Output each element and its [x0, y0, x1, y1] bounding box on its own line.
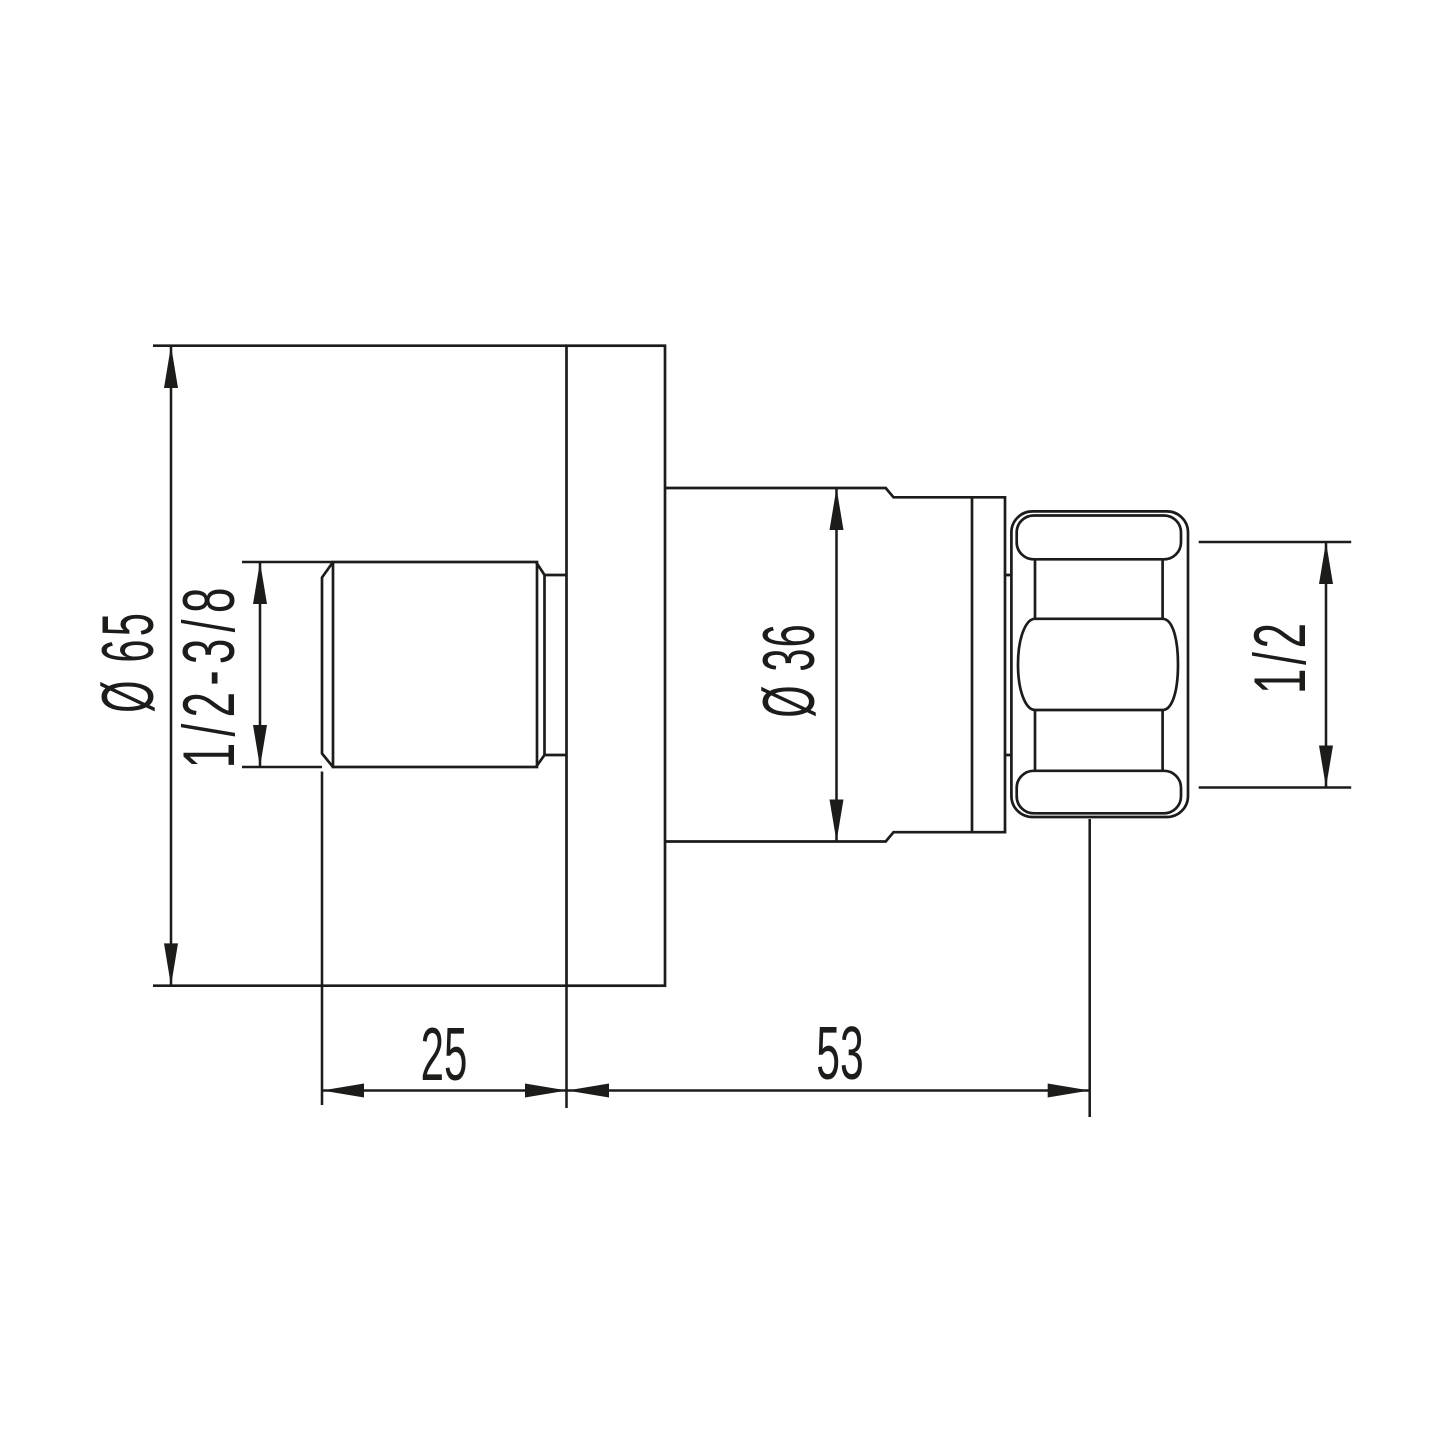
svg-text:53: 53	[816, 1011, 864, 1095]
svg-text:Ø 36: Ø 36	[748, 624, 830, 717]
svg-text:25: 25	[421, 1012, 468, 1096]
svg-text:1/2-3/8: 1/2-3/8	[168, 588, 249, 769]
svg-text:Ø 65: Ø 65	[87, 613, 169, 713]
svg-text:1/2: 1/2	[1239, 623, 1320, 694]
